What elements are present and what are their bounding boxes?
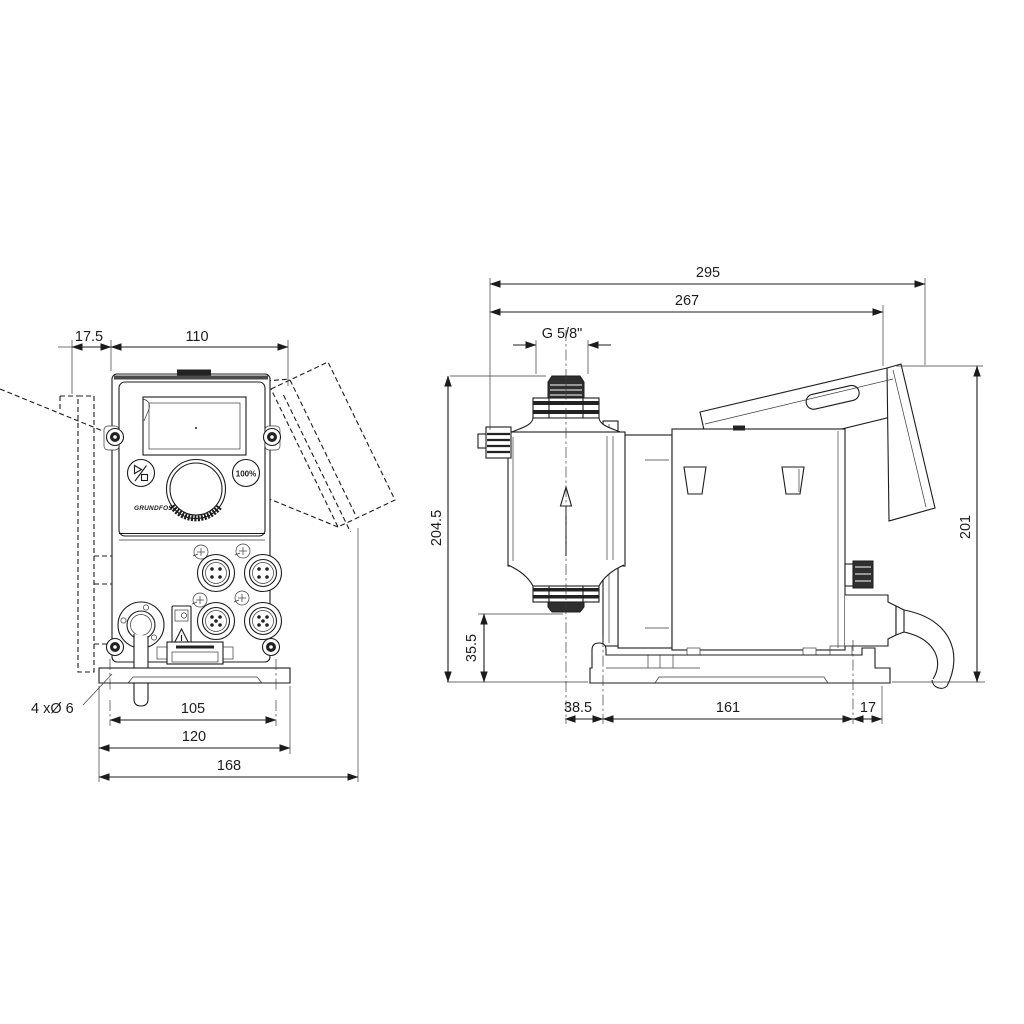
screw-icon — [107, 429, 124, 446]
dim-wall-offset: 17.5 — [75, 329, 103, 345]
rail-bracket — [157, 642, 233, 664]
dim-thread: G 5/8" — [542, 326, 583, 342]
side-view: 295 267 G 5/8" 204.5 35.5 201 38.5 161 — [429, 265, 985, 724]
dim-center-offset: 38.5 — [564, 700, 592, 716]
m12-connector-icon — [245, 603, 282, 640]
m12-connector-icon — [245, 555, 282, 592]
screw-icon — [107, 639, 124, 656]
screw-icon — [264, 429, 281, 446]
dim-overall-width: 168 — [217, 758, 241, 774]
drawing-canvas: 100% GRUNDFOS — [0, 0, 1024, 1024]
dim-body-width: 110 — [185, 329, 208, 345]
drive-adapter — [618, 435, 672, 648]
dim-base-end: 17 — [860, 700, 876, 716]
dim-total-depth: 295 — [696, 265, 720, 281]
dim-height-overall-right: 201 — [958, 515, 974, 539]
dim-height-overall-left: 204.5 — [429, 510, 445, 546]
display-dot — [195, 427, 197, 429]
motor-housing — [672, 426, 845, 657]
dim-valve-height: 35.5 — [464, 634, 480, 662]
vent-plug — [478, 427, 511, 458]
dim-hole-spacing: 105 — [181, 701, 205, 717]
dim-housing-depth: 267 — [675, 293, 699, 309]
mains-cable-side — [904, 610, 954, 686]
screw-icon — [263, 639, 280, 656]
technical-drawing: 100% GRUNDFOS — [0, 0, 1024, 1024]
power-connector — [845, 561, 873, 588]
top-tab — [177, 370, 211, 376]
dim-base-length: 161 — [716, 700, 740, 716]
m12-connector-icon — [198, 603, 235, 640]
mounting-holes-label: 4 xØ 6 — [31, 701, 74, 717]
front-view: 100% GRUNDFOS — [0, 329, 395, 782]
dim-plate-width: 120 — [182, 729, 206, 745]
grundfos-logo: GRUNDFOS — [134, 505, 173, 512]
percent-button-label: 100% — [236, 470, 256, 479]
m12-connector-icon — [198, 555, 235, 592]
